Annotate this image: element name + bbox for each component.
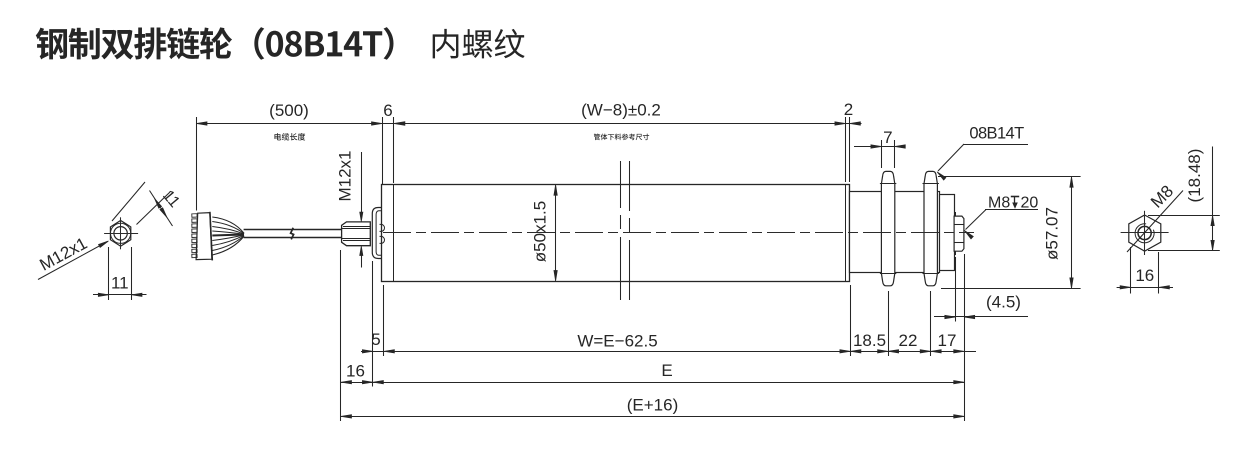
svg-text:E: E bbox=[661, 361, 672, 380]
svg-text:16: 16 bbox=[1135, 266, 1154, 285]
svg-text:ø57.07: ø57.07 bbox=[1043, 207, 1062, 260]
svg-text:20: 20 bbox=[1021, 195, 1039, 212]
svg-text:7: 7 bbox=[883, 128, 892, 147]
svg-text:(W−8)±0.2: (W−8)±0.2 bbox=[581, 101, 661, 120]
svg-text:(500): (500) bbox=[269, 101, 309, 120]
svg-text:(18.48): (18.48) bbox=[1185, 149, 1204, 203]
svg-text:08B14T: 08B14T bbox=[969, 125, 1024, 143]
svg-text:W=E−62.5: W=E−62.5 bbox=[577, 332, 657, 351]
svg-text:16: 16 bbox=[346, 362, 365, 381]
svg-text:18.5: 18.5 bbox=[853, 331, 886, 350]
svg-text:11: 11 bbox=[111, 274, 129, 293]
svg-text:ø50x1.5: ø50x1.5 bbox=[531, 201, 550, 262]
svg-text:(4.5): (4.5) bbox=[986, 293, 1021, 312]
svg-text:2: 2 bbox=[844, 100, 853, 119]
svg-text:5: 5 bbox=[371, 330, 380, 349]
svg-text:17: 17 bbox=[938, 331, 957, 350]
svg-text:M12x1: M12x1 bbox=[336, 150, 355, 201]
svg-text:22: 22 bbox=[899, 331, 918, 350]
svg-text:6: 6 bbox=[383, 101, 392, 120]
svg-text:(E+16): (E+16) bbox=[627, 396, 679, 415]
svg-text:M8: M8 bbox=[988, 195, 1010, 212]
